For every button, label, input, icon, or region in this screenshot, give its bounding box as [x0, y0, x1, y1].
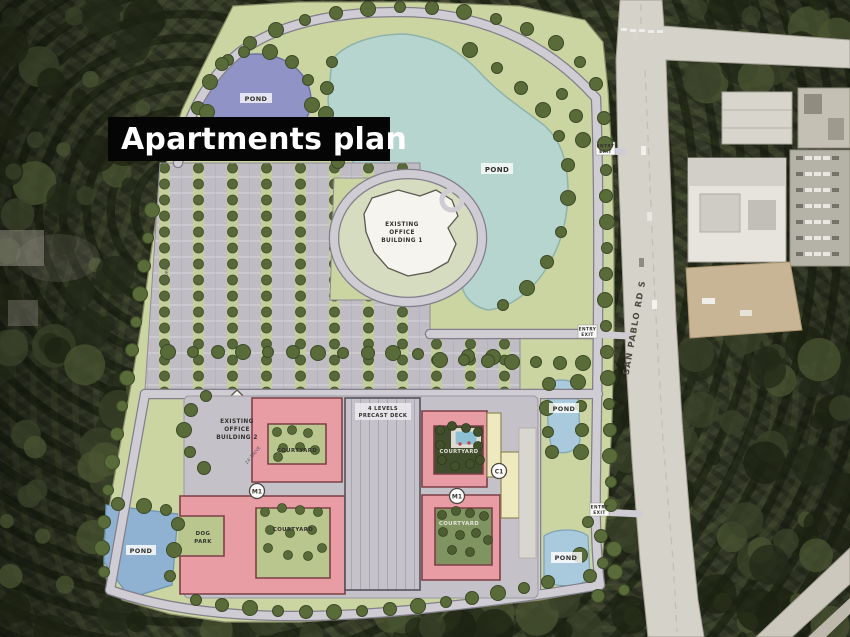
courtyard-left-upper-label: COURTYARD — [277, 448, 317, 454]
badge-c1-label: C1 — [495, 469, 504, 476]
pond-south-west-label: POND — [130, 547, 153, 555]
badge-m1-right: M1 — [450, 489, 465, 504]
pond-label: POND — [126, 545, 156, 555]
office2-line3: BUILDING 2 — [216, 435, 258, 441]
dogpark-line1: DOG — [196, 531, 211, 537]
parking-deck — [345, 398, 420, 590]
pond-label: POND — [240, 93, 272, 103]
pond-label: POND — [481, 163, 513, 174]
courtyard-left-lower — [256, 508, 330, 578]
exit-line: EXIT — [581, 332, 593, 338]
courtyard-right-upper-label: COURTYARD — [440, 449, 479, 455]
plaza-walk — [519, 428, 536, 558]
exit-line: EXIT — [593, 510, 605, 516]
drive-aisle-label-west: 24' DRIVE — [164, 263, 171, 285]
entry-line: ENTRY — [591, 505, 609, 511]
title-banner: Apartments plan — [108, 117, 390, 161]
badge-m1-left: M1 — [250, 484, 265, 499]
badge-m1-left-label: M1 — [252, 489, 262, 496]
courtyard-right-lower-label: COURTYARD — [439, 521, 479, 527]
badge-m1-right-label: M1 — [452, 494, 462, 501]
pond-east-label: POND — [553, 405, 576, 413]
pond-top-left-label: POND — [245, 95, 268, 103]
pond-central-label: POND — [485, 166, 509, 174]
pond-label: POND — [549, 403, 579, 413]
pond-label: POND — [551, 552, 582, 563]
office1-line1: EXISTING — [385, 222, 419, 228]
entry-line: ENTRY — [597, 144, 615, 150]
courtyard-left-lower-label: COURTYARD — [273, 527, 313, 533]
dogpark-line2: PARK — [194, 539, 212, 545]
deck-line1: 4 LEVELS — [368, 406, 398, 412]
badge-c1: C1 — [492, 464, 507, 479]
office2-line2: OFFICE — [224, 427, 250, 433]
clubhouse-building — [501, 452, 519, 518]
entry-line: ENTRY — [579, 327, 597, 333]
exit-line: EXIT — [599, 149, 611, 155]
page-title: Apartments plan — [121, 122, 407, 157]
screenshot-root: POND POND POND POND POND EXISTING OFFICE — [0, 0, 850, 637]
pond-south-east-label: POND — [555, 554, 578, 562]
commercial-area — [686, 88, 850, 338]
deck-line2: PRECAST DECK — [359, 413, 408, 419]
office2-line1: EXISTING — [220, 419, 254, 425]
office1-line2: OFFICE — [389, 230, 415, 236]
site-plan: POND POND POND POND POND EXISTING OFFICE — [0, 0, 850, 637]
office1-line3: BUILDING 1 — [381, 238, 423, 244]
commercial-building — [722, 92, 792, 144]
